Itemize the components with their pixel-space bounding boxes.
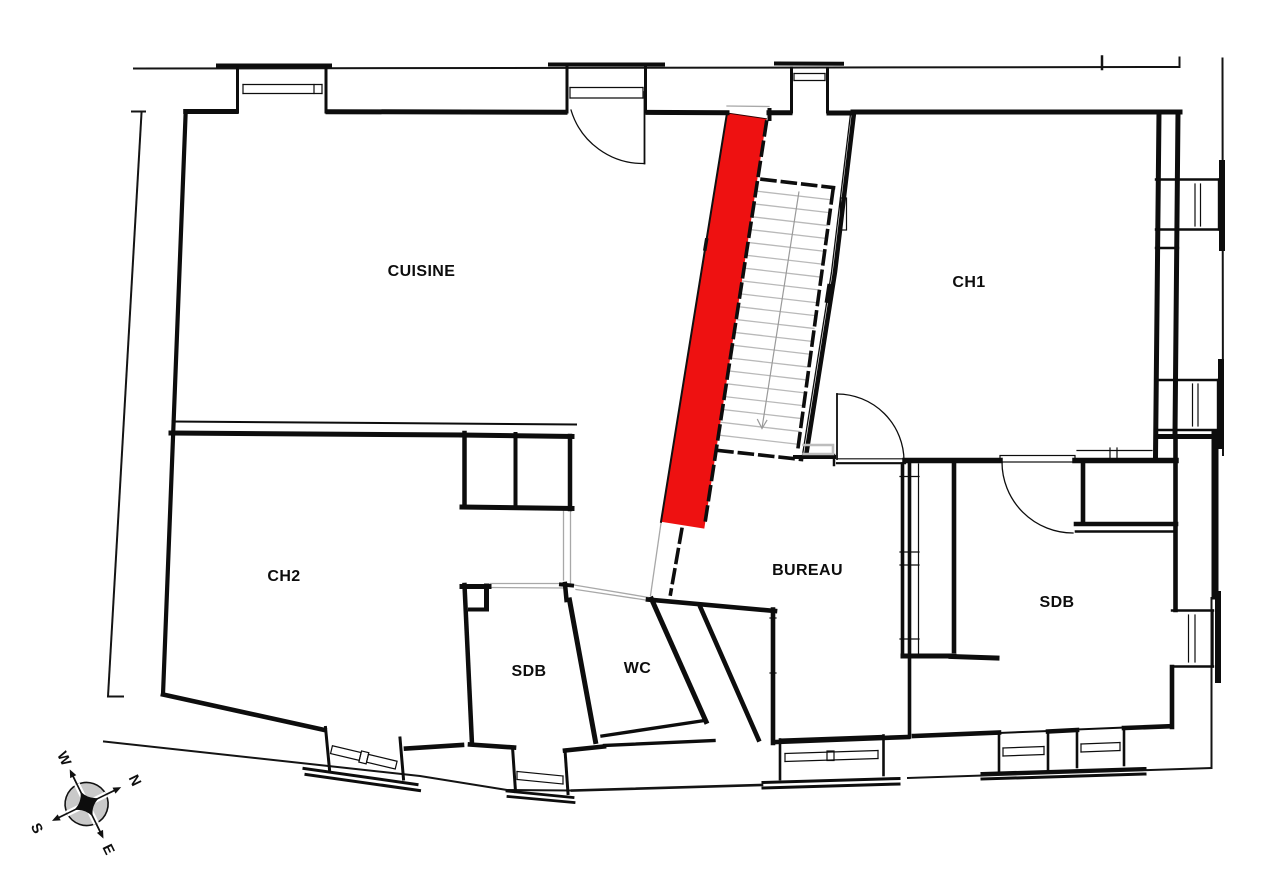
svg-text:CUISINE: CUISINE <box>388 263 456 280</box>
svg-text:SDB: SDB <box>512 663 547 680</box>
svg-text:BUREAU: BUREAU <box>772 562 843 579</box>
svg-text:WC: WC <box>624 660 652 677</box>
svg-text:CH1: CH1 <box>952 274 985 291</box>
svg-text:CH2: CH2 <box>267 568 300 585</box>
svg-text:SDB: SDB <box>1040 594 1075 611</box>
